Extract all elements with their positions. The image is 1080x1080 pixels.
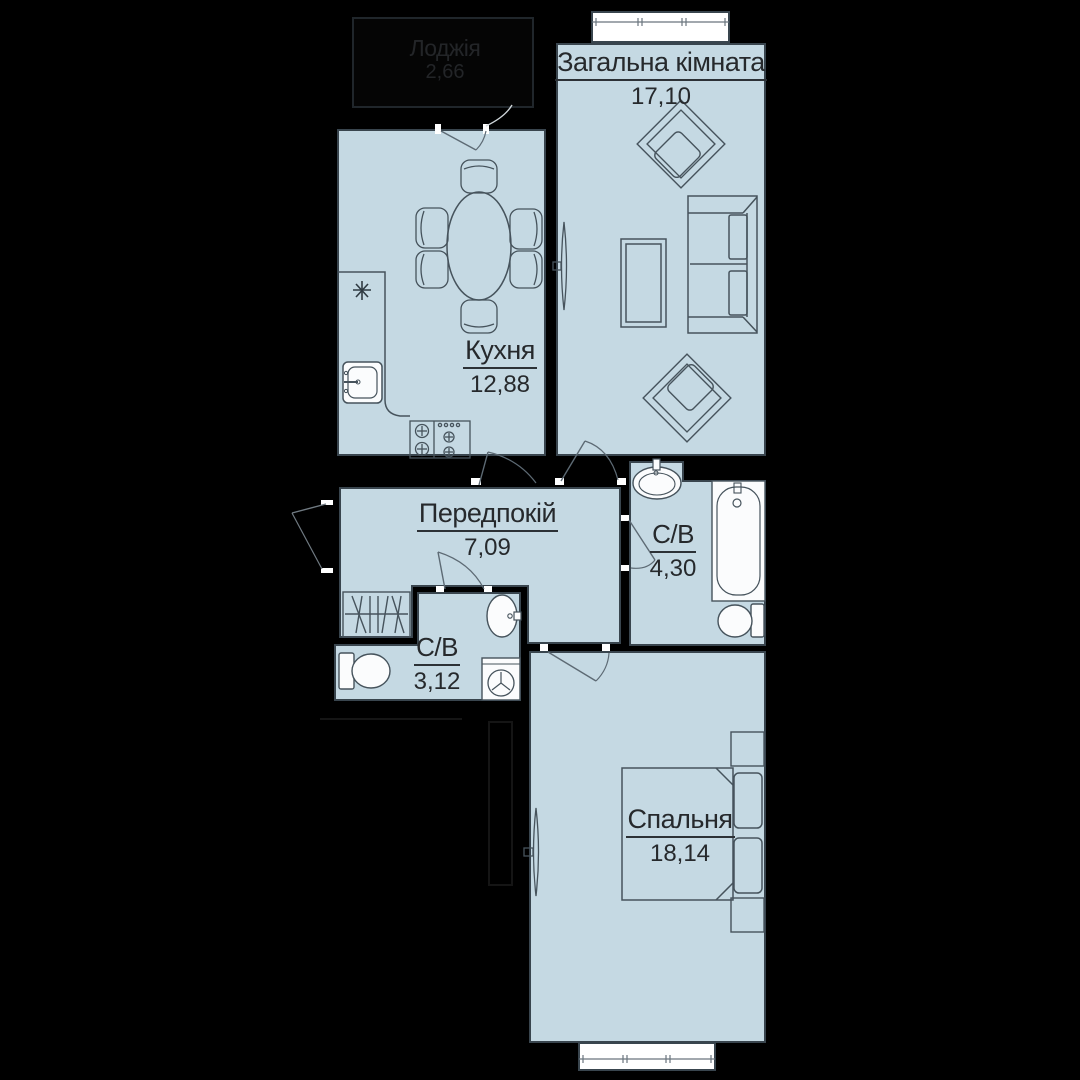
toilet-icon: [718, 604, 764, 637]
bathtub-icon: [712, 481, 765, 601]
entrance-door: [292, 500, 333, 573]
toilet-icon: [339, 653, 390, 689]
floor-plan-drawing: [0, 0, 1080, 1080]
window-icon-bedroom: [579, 1043, 715, 1070]
loggia-floor: [353, 18, 533, 107]
room-bedroom: [530, 652, 765, 1042]
washing-machine-icon: [482, 658, 520, 700]
kitchen-sink-icon: [343, 362, 382, 403]
floor-plan: Загальна кімната 17,10 Кухня 12,88 Перед…: [0, 0, 1080, 1080]
room-kitchen: [338, 130, 545, 455]
window-icon-living: [592, 12, 729, 42]
neighbour-outline: [320, 719, 512, 885]
door-kitchen: [471, 452, 536, 485]
